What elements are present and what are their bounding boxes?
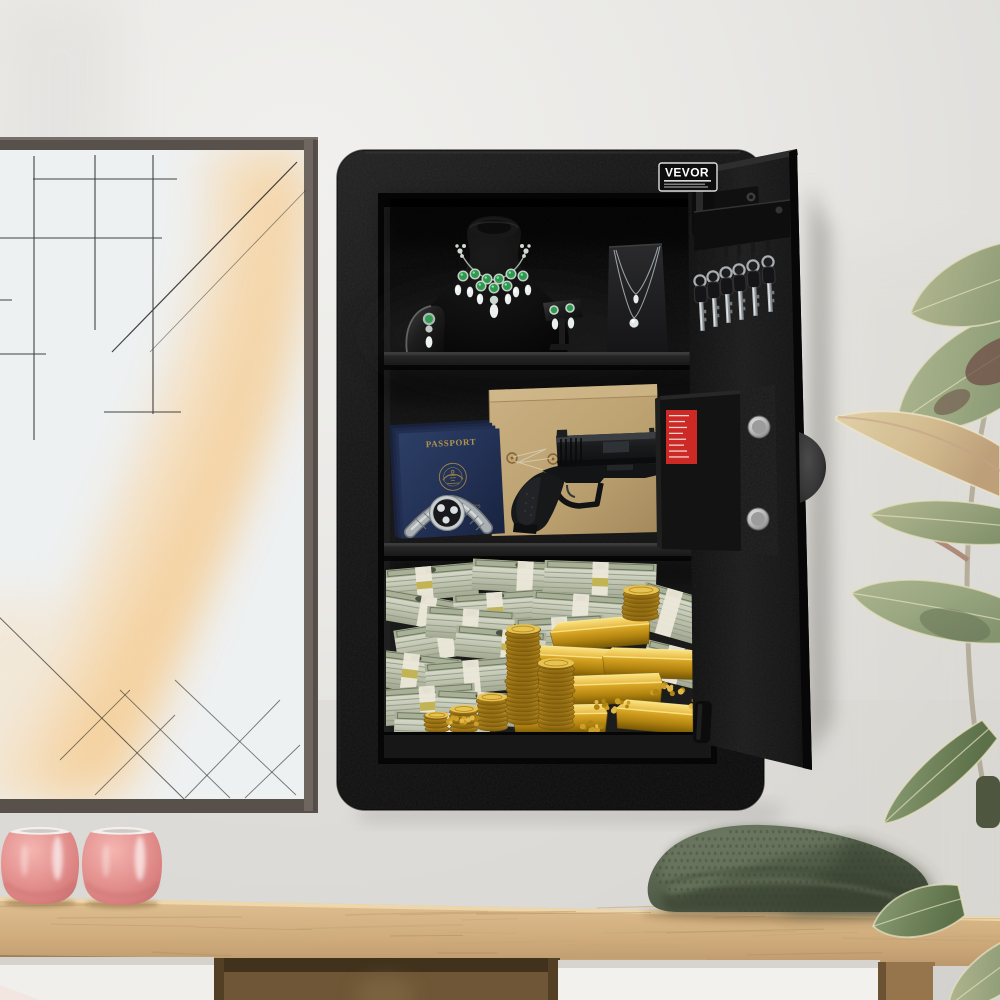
svg-text:VEVOR: VEVOR <box>665 166 709 180</box>
